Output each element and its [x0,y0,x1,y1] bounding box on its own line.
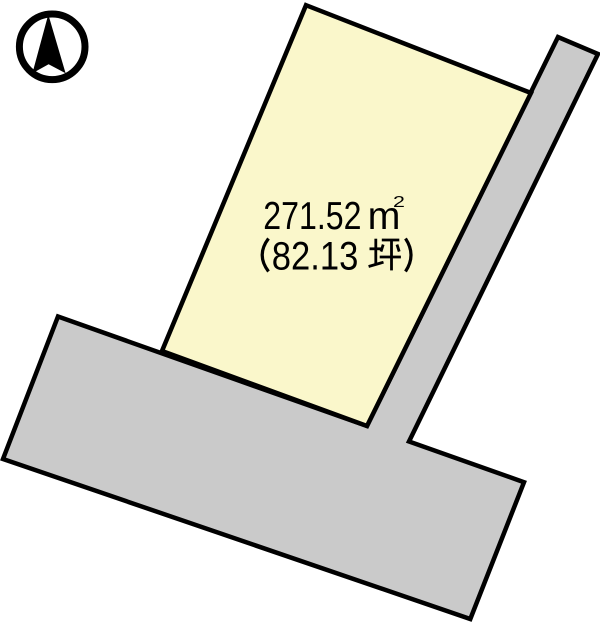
svg-text:82.13: 82.13 [272,235,359,279]
svg-text:2: 2 [393,193,405,210]
svg-text:271.52: 271.52 [263,195,361,238]
